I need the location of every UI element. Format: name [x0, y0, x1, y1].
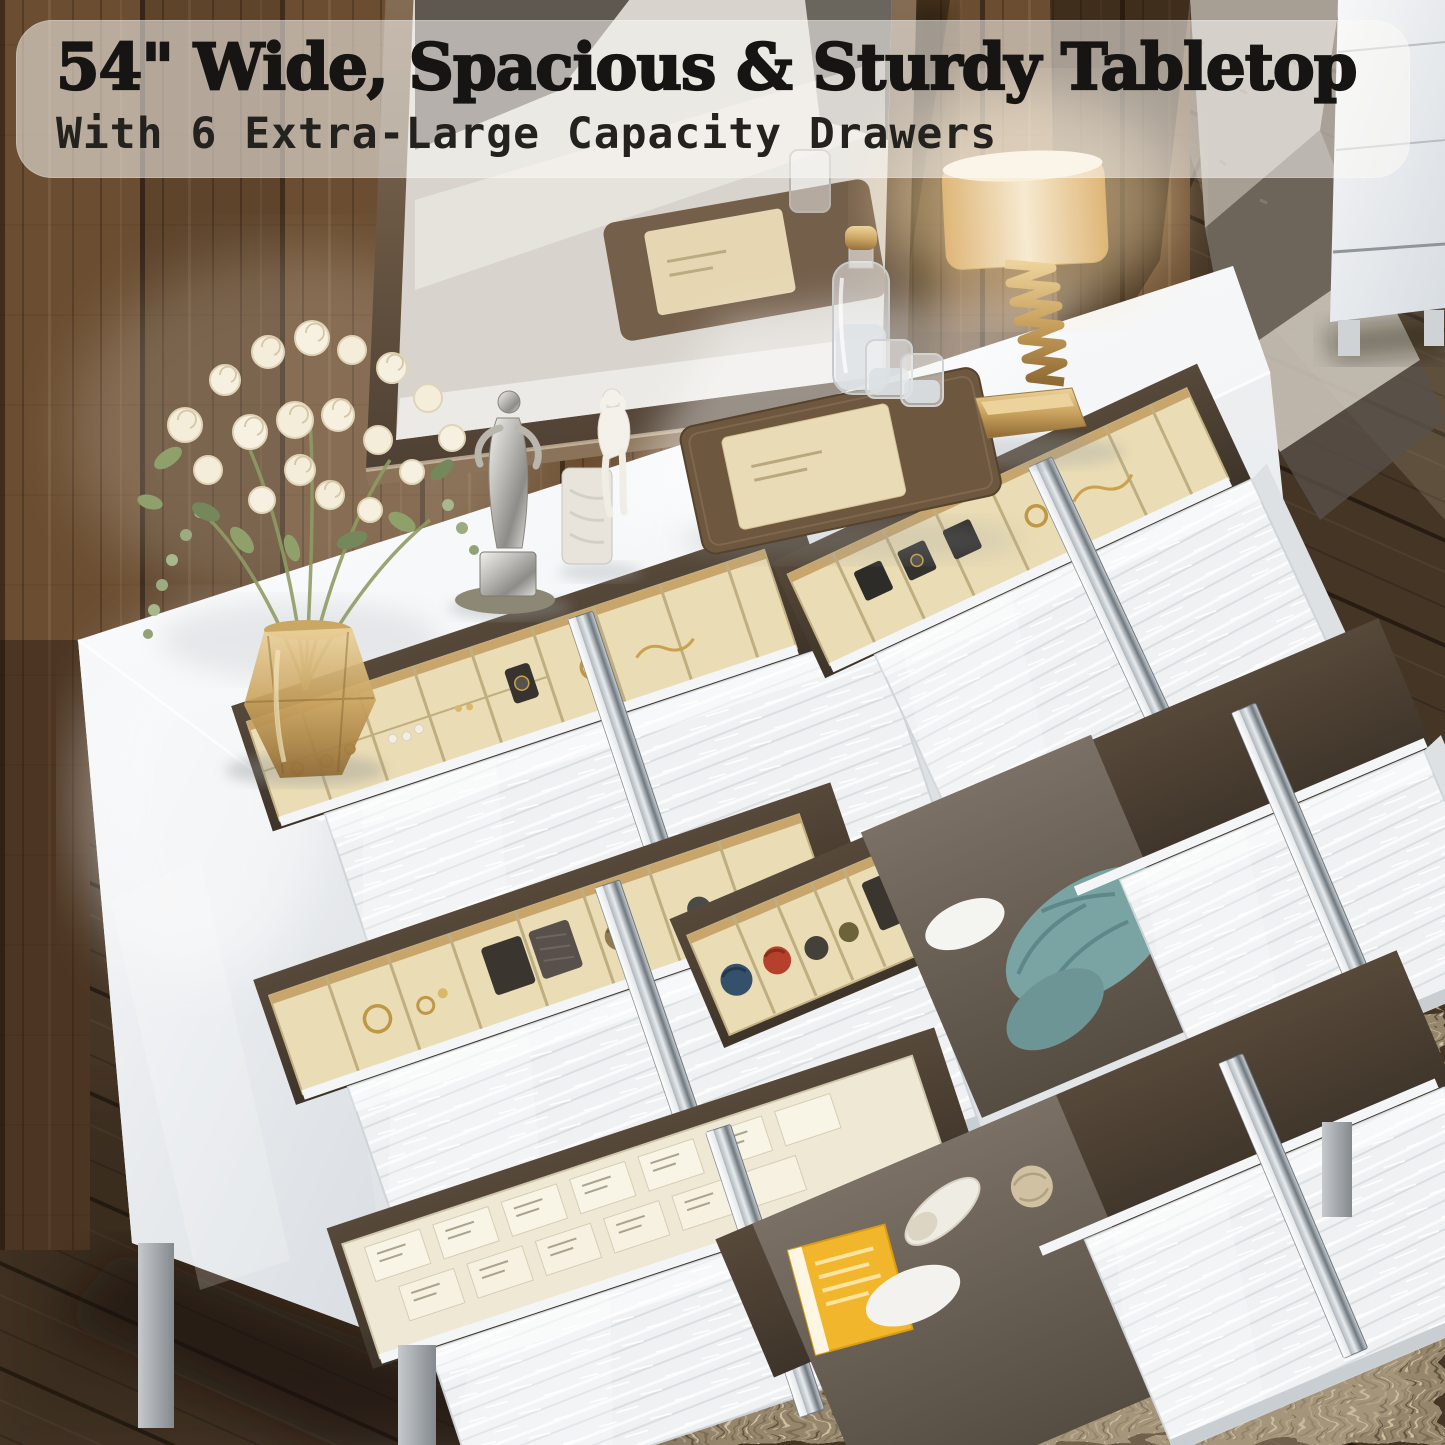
dresser-leg: [138, 1243, 174, 1428]
dresser-leg: [398, 1345, 436, 1445]
room-scene: [0, 0, 1445, 1445]
nightstand-leg: [1338, 320, 1360, 356]
subheadline: With 6 Extra-Large Capacity Drawers: [56, 109, 1410, 159]
marketing-overlay: 54" Wide, Spacious & Sturdy Tabletop Wit…: [16, 20, 1410, 178]
dresser-leg: [1322, 1122, 1352, 1217]
nightstand-leg: [1424, 310, 1444, 346]
product-photo: 54" Wide, Spacious & Sturdy Tabletop Wit…: [0, 0, 1445, 1445]
headline: 54" Wide, Spacious & Sturdy Tabletop: [56, 34, 1383, 101]
carafe-stopper: [845, 226, 877, 250]
